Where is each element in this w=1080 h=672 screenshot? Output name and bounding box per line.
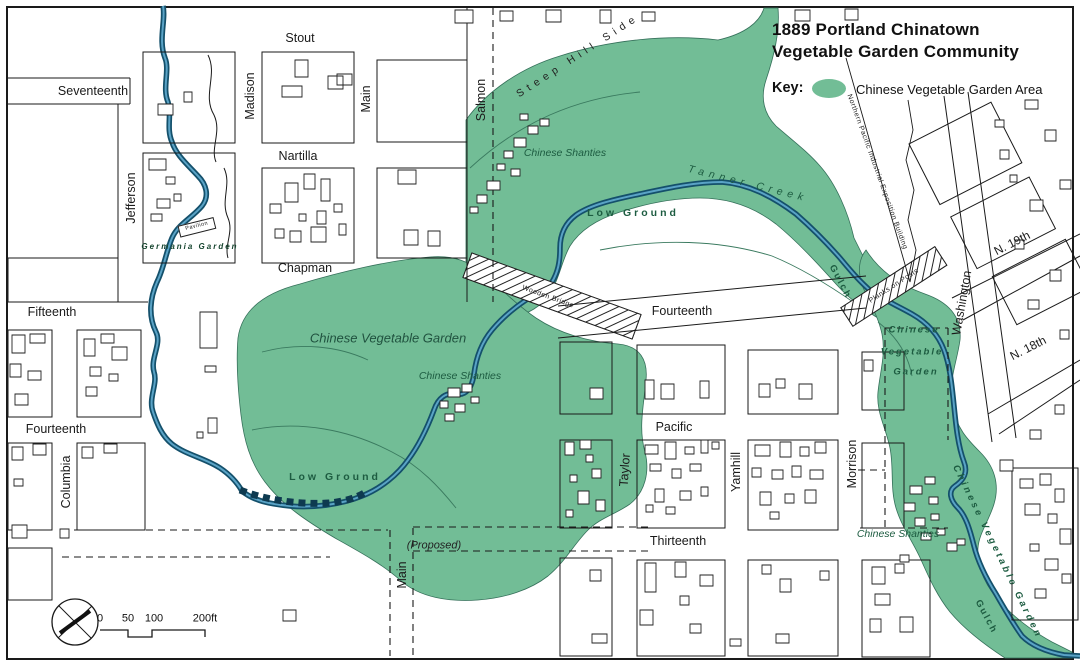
street-chapman: Chapman bbox=[278, 262, 332, 275]
street-jefferson: Jefferson bbox=[125, 172, 138, 223]
map-page: Seventeenth Stout Madison Main Nartilla … bbox=[0, 0, 1080, 672]
feature-chinese-vegetable-garden: Chinese Vegetable Garden bbox=[310, 332, 466, 345]
street-fifteenth: Fifteenth bbox=[28, 306, 77, 319]
street-stout: Stout bbox=[285, 32, 314, 45]
feature-cvg-right-line1: Chinese bbox=[889, 325, 940, 335]
street-fourteenth-left: Fourteenth bbox=[26, 423, 86, 436]
street-morrison: Morrison bbox=[846, 440, 859, 489]
street-seventeenth: Seventeenth bbox=[58, 85, 128, 98]
street-madison: Madison bbox=[244, 72, 257, 119]
street-main-proposed: Main bbox=[396, 561, 409, 588]
feature-proposed: (Proposed) bbox=[407, 541, 461, 552]
feature-chinese-shanties-bottom: Chinese Shanties bbox=[857, 529, 939, 540]
street-columbia: Columbia bbox=[60, 456, 73, 509]
map-key-item: Chinese Vegetable Garden Area bbox=[856, 82, 1042, 97]
street-pacific: Pacific bbox=[656, 421, 693, 434]
street-thirteenth: Thirteenth bbox=[650, 535, 706, 548]
street-fourteenth-center: Fourteenth bbox=[652, 305, 712, 318]
feature-low-ground-upper: Low Ground bbox=[587, 208, 679, 219]
feature-germania-garden: Germania Garden bbox=[141, 243, 238, 251]
scale-tick-100: 100 bbox=[145, 614, 163, 625]
scale-tick-0: 0 bbox=[97, 614, 103, 625]
key-garden-swatch bbox=[812, 79, 846, 98]
feature-cvg-right-line3: Garden bbox=[893, 367, 938, 377]
map-canvas bbox=[0, 0, 1080, 672]
map-key-label: Key: bbox=[772, 80, 803, 96]
feature-cvg-right-line2: Vegetable bbox=[881, 347, 944, 357]
street-taylor: Taylor bbox=[618, 453, 633, 487]
scale-tick-50: 50 bbox=[122, 614, 134, 625]
feature-chinese-shanties-center: Chinese Shanties bbox=[419, 371, 501, 382]
street-yamhill: Yamhill bbox=[730, 452, 743, 492]
feature-chinese-shanties-top: Chinese Shanties bbox=[524, 148, 606, 159]
feature-low-ground-lower: Low Ground bbox=[289, 472, 381, 483]
street-nartilla: Nartilla bbox=[279, 150, 318, 163]
map-title-line2: Vegetable Garden Community bbox=[772, 42, 1019, 62]
street-main-top: Main bbox=[360, 85, 373, 112]
street-salmon: Salmon bbox=[475, 79, 488, 121]
scale-tick-200ft: 200ft bbox=[193, 614, 217, 625]
map-title-line1: 1889 Portland Chinatown bbox=[772, 20, 980, 40]
